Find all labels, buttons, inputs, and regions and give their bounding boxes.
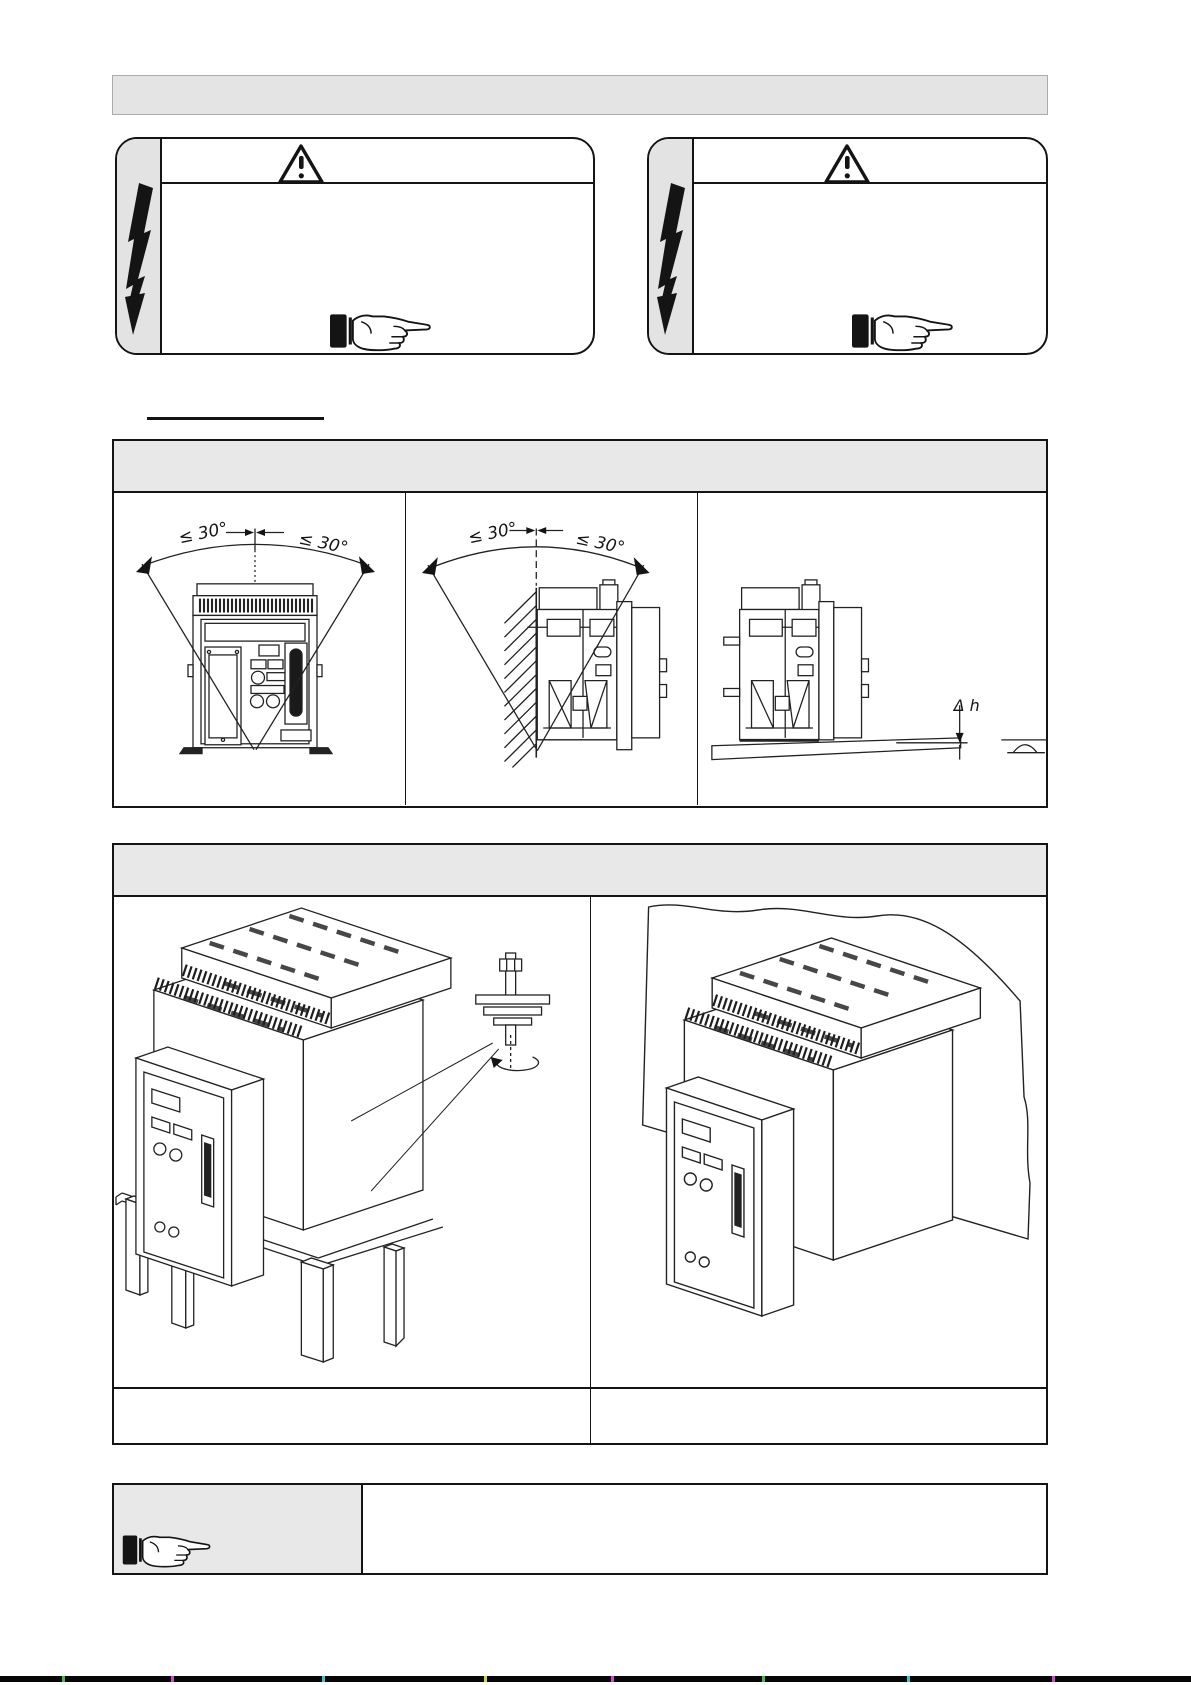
- pointing-hand-icon: [122, 1531, 214, 1569]
- unevenness-drawing: Δ h: [698, 493, 1047, 805]
- section-heading-underline: [147, 417, 324, 420]
- diagram-side-tilt: ≤ 30° ≤ 30°: [405, 493, 697, 805]
- caption-panel-mounting: [590, 1389, 1046, 1444]
- diagram-panel-mounting: [590, 897, 1046, 1387]
- manual-page: ≤ 30° ≤ 30°: [0, 0, 1191, 1685]
- diagram-front-tilt: ≤ 30° ≤ 30°: [114, 493, 405, 805]
- scan-edge-artifact: [0, 1676, 1191, 1682]
- frame-mounting-drawing: [114, 897, 590, 1387]
- mounting-table-header: [114, 845, 1046, 897]
- warning-separator: [694, 182, 1046, 184]
- lightning-arrow-icon: [124, 183, 154, 345]
- warning-box-right: [647, 137, 1048, 355]
- front-view-drawing: ≤ 30° ≤ 30°: [114, 493, 405, 805]
- warning-box-left: [115, 137, 595, 355]
- angle-label: ≤ 30°: [574, 528, 627, 558]
- warning-stripe-left: [117, 139, 162, 353]
- angle-label: ≤ 30°: [297, 528, 350, 558]
- warning-triangle-icon: [277, 143, 325, 185]
- panel-mounting-drawing: [591, 897, 1046, 1387]
- tilt-table-body: ≤ 30° ≤ 30°: [114, 493, 1046, 805]
- angle-label: ≤ 30°: [466, 518, 519, 548]
- mounting-table-body: [114, 897, 1046, 1387]
- tilt-table-header: [114, 441, 1046, 493]
- note-icon-cell: [114, 1485, 363, 1573]
- side-view-drawing: ≤ 30° ≤ 30°: [406, 493, 697, 805]
- tilt-table: ≤ 30° ≤ 30°: [112, 439, 1048, 808]
- warning-separator: [162, 182, 593, 184]
- mounting-table: [112, 843, 1048, 1445]
- caption-frame-mounting: [114, 1389, 590, 1444]
- warning-triangle-icon: [823, 143, 871, 185]
- note-text-cell: [374, 1485, 1046, 1573]
- diagram-frame-mounting: [114, 897, 590, 1387]
- angle-label: ≤ 30°: [177, 518, 230, 548]
- diagram-base-unevenness: Δ h: [697, 493, 1047, 805]
- pointing-hand-icon: [852, 309, 956, 353]
- warning-stripe-right: [649, 139, 694, 353]
- page-header-bar: [112, 75, 1048, 115]
- mounting-caption-row: [114, 1387, 1046, 1444]
- note-box: [112, 1483, 1048, 1575]
- height-difference-label: Δ h: [953, 696, 980, 715]
- lightning-arrow-icon: [656, 183, 686, 345]
- pointing-hand-icon: [330, 309, 434, 353]
